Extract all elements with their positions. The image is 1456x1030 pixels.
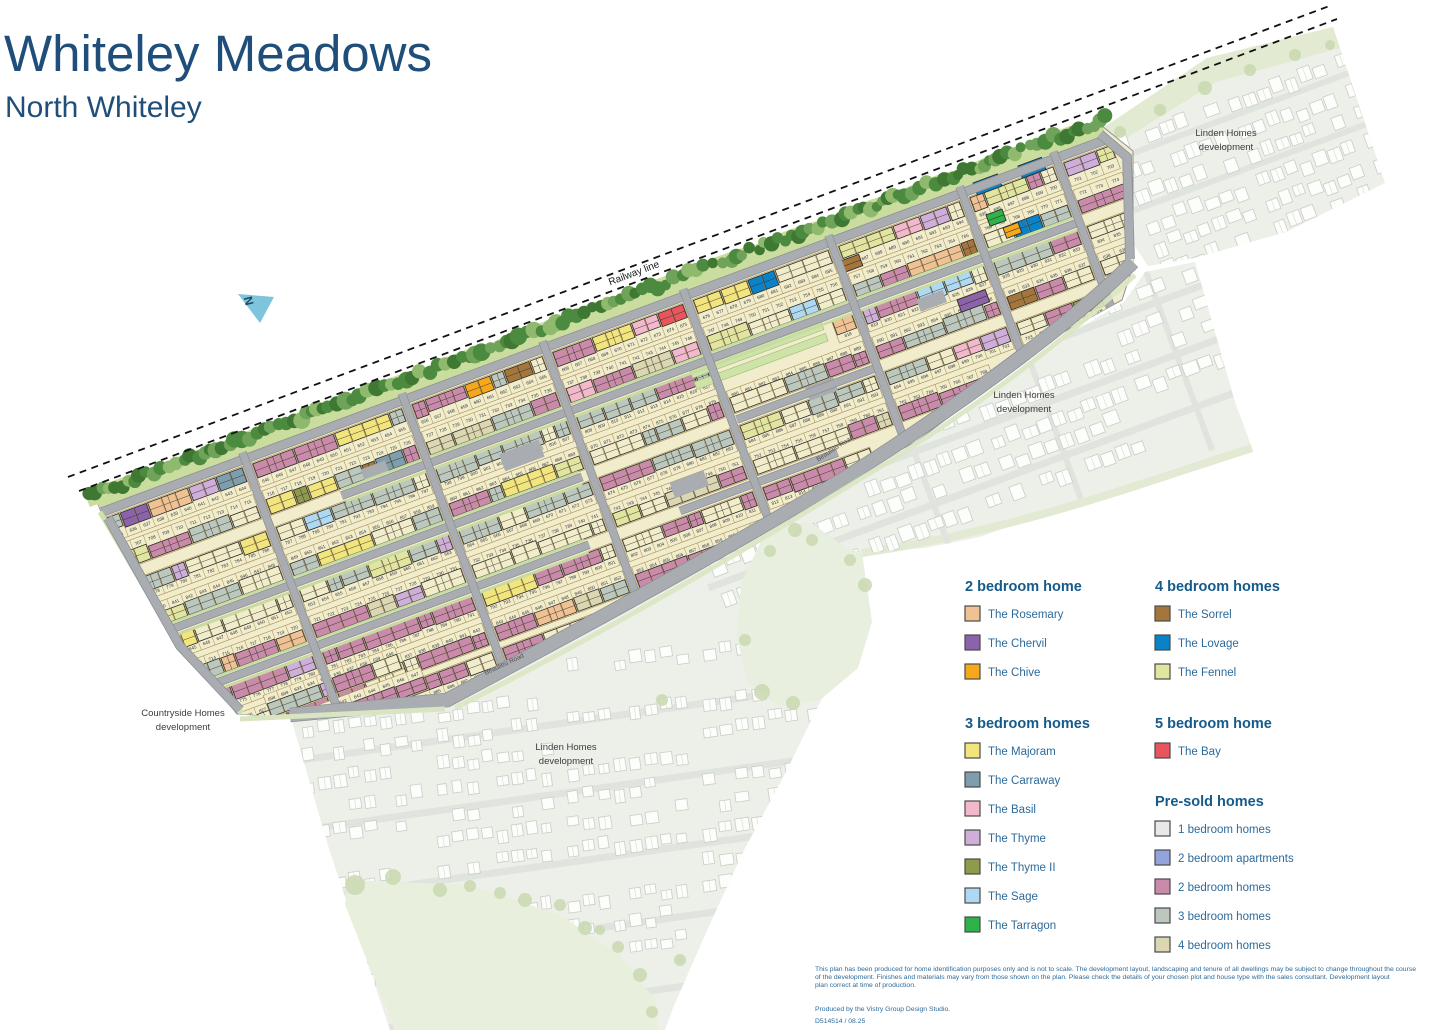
svg-text:Linden Homes: Linden Homes: [1195, 128, 1257, 139]
svg-text:development: development: [539, 756, 594, 767]
svg-text:The Fennel: The Fennel: [1178, 667, 1236, 679]
svg-text:development: development: [997, 404, 1052, 415]
svg-text:2 bedroom homes: 2 bedroom homes: [1178, 882, 1271, 894]
svg-text:The Sage: The Sage: [988, 891, 1038, 903]
svg-text:2 bedroom apartments: 2 bedroom apartments: [1178, 853, 1294, 865]
svg-text:The Bay: The Bay: [1178, 746, 1221, 758]
svg-text:The Thyme II: The Thyme II: [988, 862, 1056, 874]
svg-text:3 bedroom homes: 3 bedroom homes: [965, 716, 1090, 732]
svg-text:Countryside Homes: Countryside Homes: [141, 708, 225, 719]
svg-text:of the development. Finishes a: of the development. Finishes and materia…: [815, 974, 1390, 981]
svg-text:The Thyme: The Thyme: [988, 833, 1046, 845]
svg-text:The Sorrel: The Sorrel: [1178, 609, 1232, 621]
svg-text:The Chervil: The Chervil: [988, 638, 1047, 650]
svg-text:development: development: [156, 722, 211, 733]
svg-text:5 bedroom home: 5 bedroom home: [1155, 716, 1272, 732]
svg-text:Produced by the Vistry Group D: Produced by the Vistry Group Design Stud…: [815, 1006, 950, 1013]
svg-text:The Chive: The Chive: [988, 667, 1040, 679]
svg-text:3 bedroom homes: 3 bedroom homes: [1178, 911, 1271, 923]
svg-text:The Basil: The Basil: [988, 804, 1036, 816]
svg-text:The Lovage: The Lovage: [1178, 638, 1239, 650]
svg-text:Pre-sold homes: Pre-sold homes: [1155, 794, 1264, 810]
svg-text:Whiteley Meadows: Whiteley Meadows: [4, 25, 432, 82]
svg-text:4 bedroom homes: 4 bedroom homes: [1155, 579, 1280, 595]
svg-text:2 bedroom home: 2 bedroom home: [965, 579, 1082, 595]
svg-text:1 bedroom homes: 1 bedroom homes: [1178, 824, 1271, 836]
svg-text:D514514 / 08.25: D514514 / 08.25: [815, 1018, 865, 1025]
svg-text:The Rosemary: The Rosemary: [988, 609, 1064, 621]
svg-text:The Tarragon: The Tarragon: [988, 920, 1056, 932]
svg-text:4 bedroom homes: 4 bedroom homes: [1178, 940, 1271, 952]
svg-text:This plan has been produced fo: This plan has been produced for home ide…: [815, 966, 1416, 973]
svg-text:The Majoram: The Majoram: [988, 746, 1056, 758]
svg-text:development: development: [1199, 142, 1254, 153]
svg-text:plan correct at time of produc: plan correct at time of production.: [815, 982, 916, 989]
svg-text:North Whiteley: North Whiteley: [5, 91, 202, 124]
svg-text:Linden Homes: Linden Homes: [535, 742, 597, 753]
svg-text:Linden Homes: Linden Homes: [993, 390, 1055, 401]
svg-text:The Carraway: The Carraway: [988, 775, 1060, 787]
